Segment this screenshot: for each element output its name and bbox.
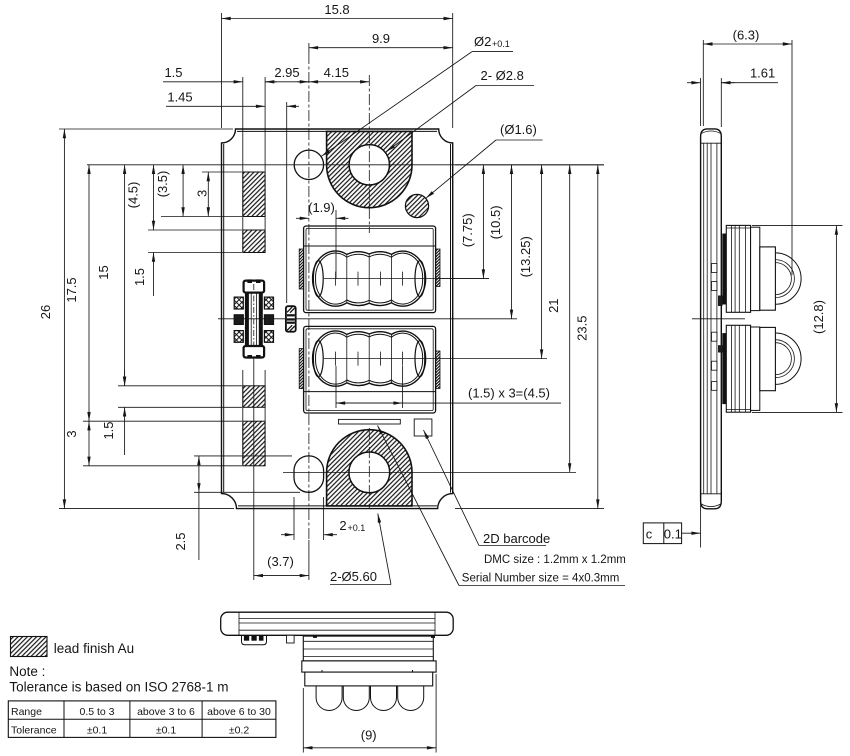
svg-text:3: 3	[64, 430, 79, 437]
svg-text:9.9: 9.9	[372, 31, 390, 46]
svg-text:Tolerance is based on ISO 2768: Tolerance is based on ISO 2768-1 m	[9, 680, 228, 695]
svg-text:(6.3): (6.3)	[733, 28, 760, 43]
svg-text:Serial Number size = 4x0.3mm: Serial Number size = 4x0.3mm	[462, 573, 620, 585]
svg-text:Note :: Note :	[9, 664, 45, 679]
svg-text:1.5: 1.5	[164, 65, 182, 80]
svg-text:1.5: 1.5	[101, 421, 116, 439]
svg-text:2-Ø5.60: 2-Ø5.60	[330, 569, 377, 584]
svg-text:above 6 to 30: above 6 to 30	[207, 706, 271, 718]
svg-text:0.5 to 3: 0.5 to 3	[79, 706, 114, 718]
svg-text:(9): (9)	[361, 728, 377, 743]
svg-text:1.45: 1.45	[167, 90, 192, 105]
svg-text:(13.25): (13.25)	[518, 236, 533, 277]
svg-text:26: 26	[38, 305, 53, 319]
svg-text:17.5: 17.5	[64, 277, 79, 302]
svg-text:Ø2: Ø2	[474, 34, 491, 49]
svg-text:15.8: 15.8	[324, 2, 349, 17]
svg-text:lead finish Au: lead finish Au	[54, 641, 134, 656]
svg-text:above 3 to 6: above 3 to 6	[137, 706, 195, 718]
svg-text:Tolerance: Tolerance	[11, 725, 57, 737]
svg-text:4.15: 4.15	[324, 65, 349, 80]
svg-text:(Ø1.6): (Ø1.6)	[500, 122, 537, 137]
svg-text:+0.1: +0.1	[348, 523, 366, 533]
svg-text:3: 3	[195, 190, 210, 197]
svg-text:(1.5) x 3=(4.5): (1.5) x 3=(4.5)	[468, 386, 550, 401]
svg-text:2.95: 2.95	[274, 65, 299, 80]
svg-text:1.5: 1.5	[132, 268, 147, 286]
svg-text:2.5: 2.5	[173, 532, 188, 550]
svg-text:15: 15	[96, 265, 111, 279]
svg-text:2: 2	[339, 518, 346, 533]
svg-text:21: 21	[546, 298, 561, 312]
svg-text:2- Ø2.8: 2- Ø2.8	[481, 68, 524, 83]
svg-text:(7.75): (7.75)	[460, 213, 475, 247]
svg-text:(1.9): (1.9)	[308, 200, 335, 215]
svg-text:c: c	[646, 527, 653, 542]
svg-text:±0.2: ±0.2	[229, 725, 250, 737]
svg-text:(4.5): (4.5)	[125, 182, 140, 209]
svg-text:23.5: 23.5	[575, 316, 590, 341]
svg-text:2D barcode: 2D barcode	[483, 531, 550, 546]
svg-text:0.1: 0.1	[664, 527, 682, 542]
svg-text:+0.1: +0.1	[492, 39, 510, 49]
svg-text:±0.1: ±0.1	[156, 725, 177, 737]
svg-text:±0.1: ±0.1	[87, 725, 108, 737]
svg-text:(12.8): (12.8)	[811, 300, 826, 334]
svg-text:Range: Range	[11, 706, 42, 718]
svg-text:(10.5): (10.5)	[488, 205, 503, 239]
svg-text:1.61: 1.61	[750, 66, 775, 81]
svg-text:DMC size : 1.2mm x 1.2mm: DMC size : 1.2mm x 1.2mm	[484, 554, 626, 566]
svg-text:(3.5): (3.5)	[155, 171, 170, 198]
svg-text:(3.7): (3.7)	[267, 554, 294, 569]
